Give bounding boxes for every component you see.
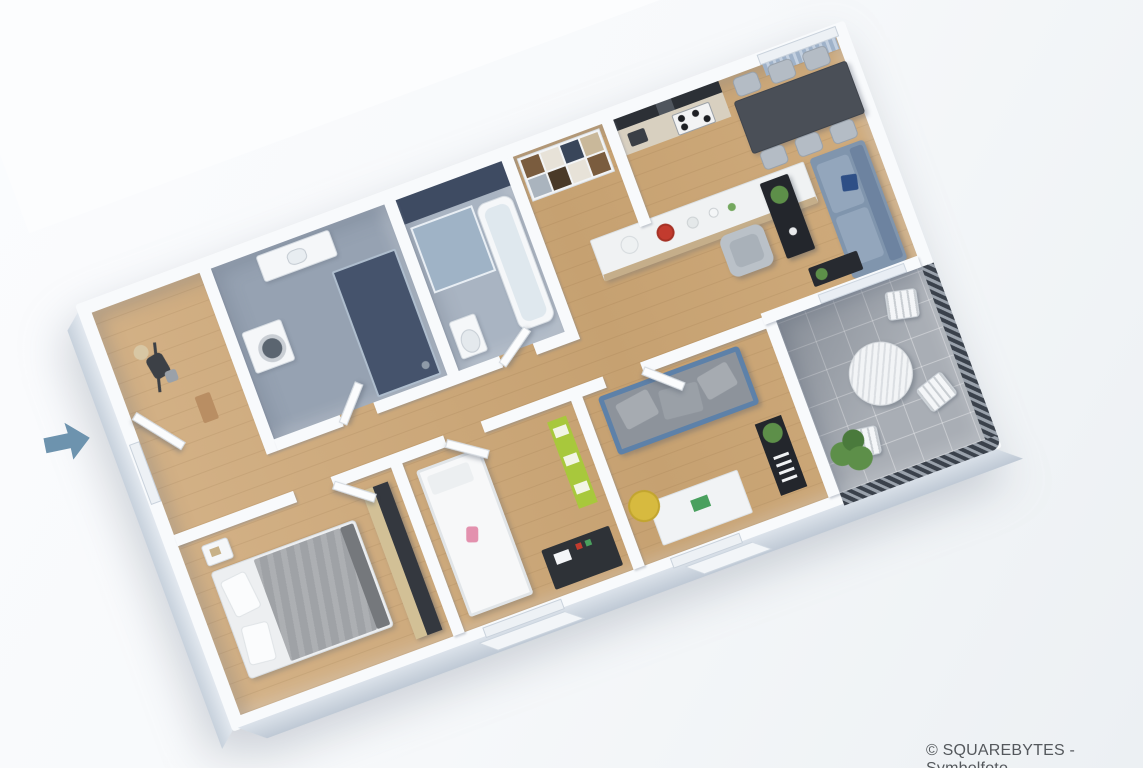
- books: [772, 449, 797, 483]
- plant: [768, 183, 791, 206]
- cup: [707, 206, 720, 219]
- plate: [618, 233, 641, 256]
- pillow: [219, 570, 262, 618]
- kitchen-sink: [627, 128, 649, 147]
- balcony-chair: [884, 288, 920, 321]
- shelf-compartment: [587, 152, 611, 176]
- floorplan-scene: © SQUAREBYTES - Symbolfoto: [0, 0, 1143, 768]
- desk-item: [584, 539, 592, 547]
- herb-pot: [727, 202, 737, 212]
- pillow: [426, 461, 474, 495]
- paper: [553, 549, 572, 565]
- bag: [164, 368, 179, 383]
- candle: [788, 226, 798, 236]
- toy: [466, 526, 478, 542]
- watermark-text: © SQUAREBYTES - Symbolfoto: [926, 742, 1143, 768]
- pillow: [240, 620, 277, 666]
- plant: [760, 420, 786, 446]
- navy-pillow: [841, 174, 859, 192]
- entrance-arrow-icon: [41, 417, 92, 465]
- desk-item: [575, 542, 583, 550]
- bowl: [685, 215, 700, 230]
- red-plate: [654, 221, 677, 244]
